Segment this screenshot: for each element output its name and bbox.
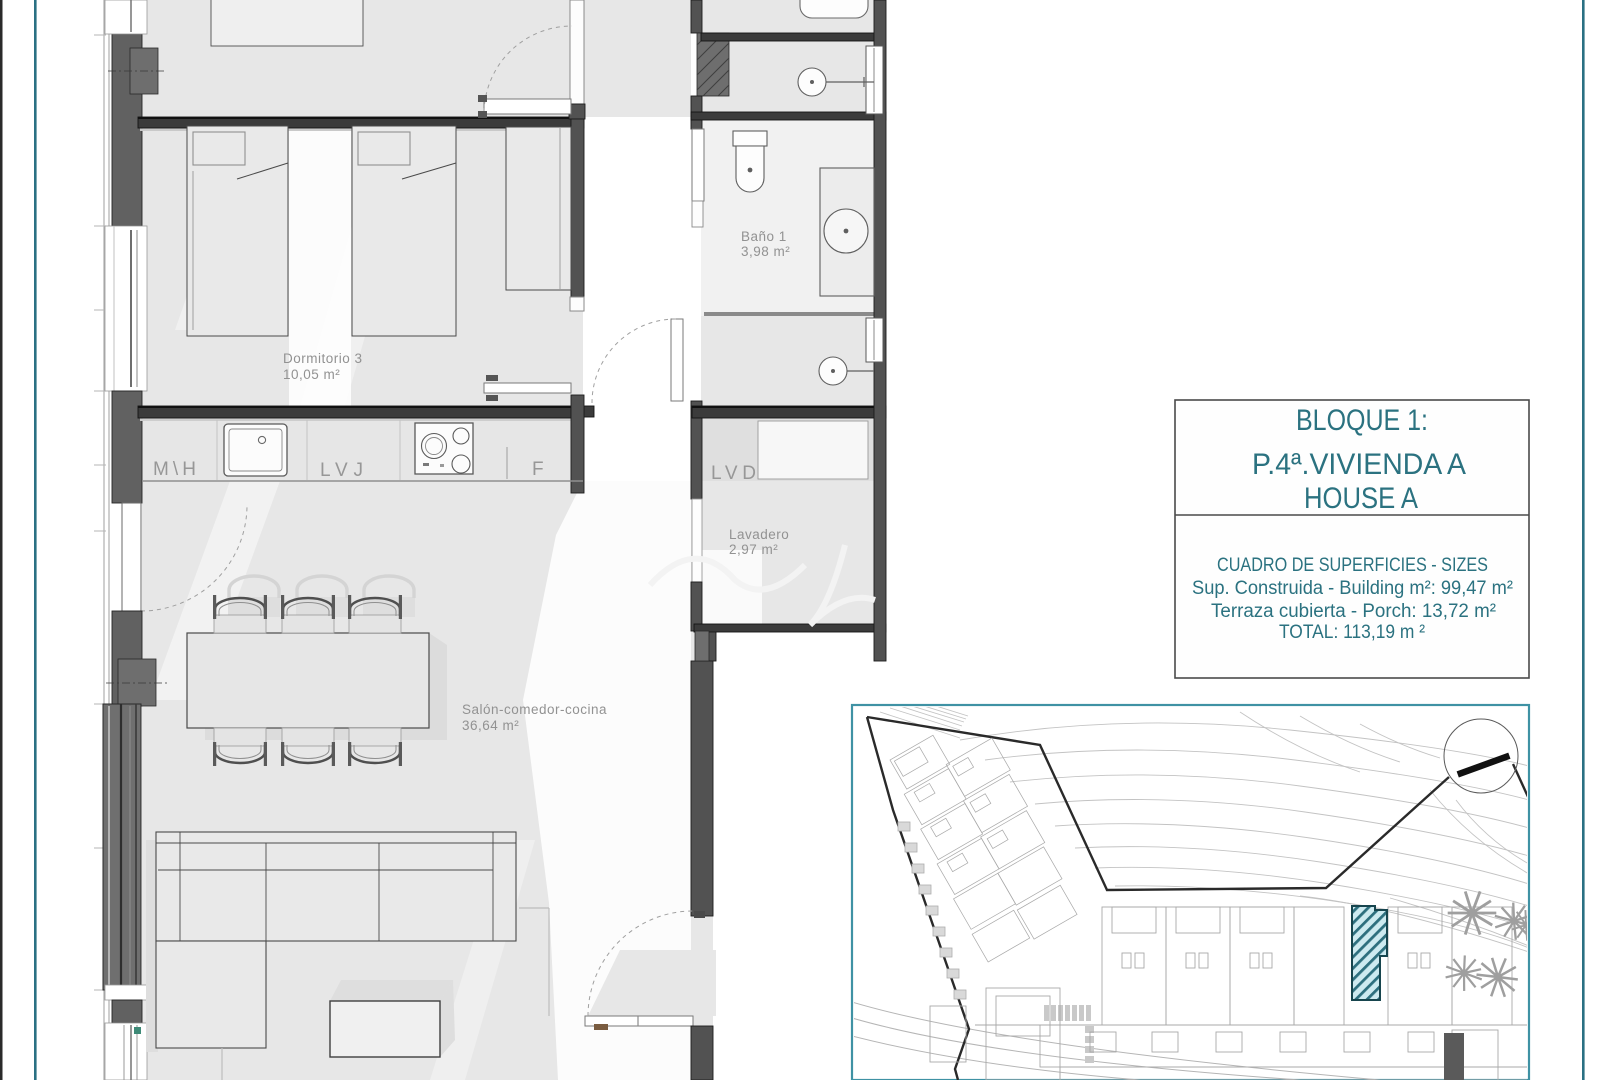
svg-text:Sup. Construida - Building m²: Sup. Construida - Building m²: 99,47 m²: [1192, 578, 1513, 599]
svg-text:LVJ: LVJ: [320, 460, 364, 481]
svg-text:TOTAL: 113,19 m ²: TOTAL: 113,19 m ²: [1279, 622, 1425, 643]
svg-text:CUADRO DE SUPERFICIES - SIZES: CUADRO DE SUPERFICIES - SIZES: [1217, 555, 1488, 576]
svg-text:M\H: M\H: [153, 459, 197, 480]
svg-text:3,98 m²: 3,98 m²: [741, 244, 790, 259]
svg-text:Terraza cubierta - Porch: 13,: Terraza cubierta - Porch: 13,72 m²: [1211, 601, 1496, 622]
svg-text:Lavadero: Lavadero: [729, 527, 789, 542]
svg-text:10,05 m²: 10,05 m²: [283, 367, 340, 382]
svg-text:Salón-comedor-cocina: Salón-comedor-cocina: [462, 702, 607, 717]
svg-text:2,97 m²: 2,97 m²: [729, 542, 778, 557]
svg-text:LVD: LVD: [711, 463, 757, 484]
svg-text:F: F: [532, 459, 545, 480]
svg-text:P.4ª.VIVIENDA A: P.4ª.VIVIENDA A: [1252, 448, 1466, 481]
svg-text:HOUSE A: HOUSE A: [1304, 482, 1418, 515]
svg-text:36,64 m²: 36,64 m²: [462, 718, 519, 733]
svg-text:BLOQUE 1:: BLOQUE 1:: [1296, 404, 1428, 437]
svg-text:Dormitorio 3: Dormitorio 3: [283, 351, 363, 366]
svg-text:Baño 1: Baño 1: [741, 229, 787, 244]
